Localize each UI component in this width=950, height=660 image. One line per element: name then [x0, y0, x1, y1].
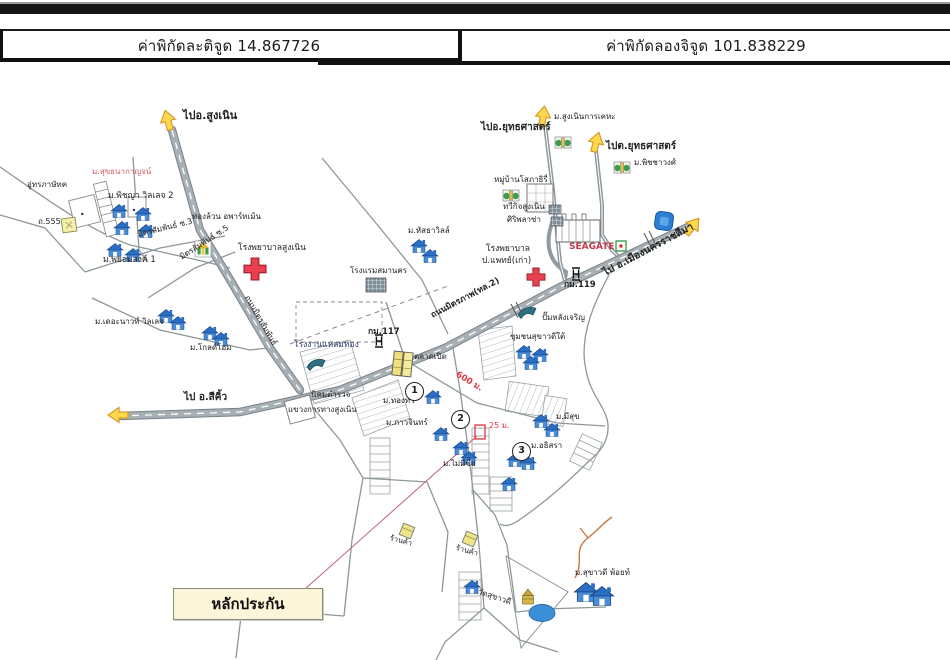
sketch-map: ไปอ.สูงเนินม.สุขธนากาญจน์อู่ทรภาษัทคถ.55…: [0, 0, 950, 660]
shop-icon: [462, 531, 478, 547]
map-graphics: [0, 0, 950, 660]
house-icon: [111, 205, 127, 218]
house-icon: [453, 442, 469, 455]
house-icon: [138, 225, 154, 238]
direction-arrow-icon: [108, 408, 128, 423]
house-icon: [158, 310, 174, 323]
coordinate-row: ค่าพิกัดละติจูด 14.867726 ค่าพิกัดลองจิจ…: [0, 29, 950, 61]
latitude-value: ค่าพิกัดละติจูด 14.867726: [0, 34, 458, 58]
shrine-icon: [195, 241, 211, 257]
green-building-icon: [614, 162, 630, 173]
house-icon: [433, 428, 449, 441]
collateral-callout-box: หลักประกัน: [173, 588, 323, 620]
hospital-cross-icon: [527, 268, 545, 286]
secondary-roads: [545, 125, 618, 281]
taweekit-store-icon: [549, 205, 561, 214]
map-icons: [61, 105, 705, 621]
dashed-boundaries: [290, 286, 448, 344]
green-building-icon: [555, 137, 571, 148]
scanned-map-document: ค่าพิกัดละติจูด 14.867726 ค่าพิกัดลองจิจ…: [0, 0, 950, 660]
shop-icon: [399, 523, 415, 539]
road-sign-green-icon: [616, 241, 626, 251]
green-building-icon: [503, 190, 519, 201]
samankorn-hotel-icon: [366, 278, 386, 292]
direction-arrow-icon: [586, 130, 606, 153]
house-icon: [170, 317, 186, 330]
temple-icon: [523, 589, 534, 604]
house-icon: [125, 249, 141, 262]
house-icon: [516, 346, 532, 359]
subdivision-block: [66, 181, 119, 243]
top-black-bar: [0, 2, 950, 14]
pond-icon: [529, 605, 555, 622]
house-icon: [520, 457, 536, 470]
subdivision-lots: [300, 326, 602, 620]
house-icon: [425, 391, 441, 404]
header-underline-right: [318, 61, 950, 65]
sign-555-icon: [61, 217, 77, 233]
stream-line: [575, 517, 612, 578]
house-icon: [411, 240, 427, 253]
coordinate-header: ค่าพิกัดละติจูด 14.867726 ค่าพิกัดลองจิจ…: [0, 0, 950, 85]
house-icon: [533, 415, 549, 428]
km-marker-icon: [375, 335, 383, 347]
direction-arrow-icon: [534, 105, 552, 127]
longitude-value: ค่าพิกัดลองจิจูด 101.838229: [462, 34, 950, 58]
hospital-cross-icon: [244, 258, 266, 280]
house-icon: [107, 244, 123, 257]
blue-landmark-icon: [654, 211, 674, 231]
house-icon: [507, 454, 523, 467]
siri-plaza-icon: [551, 217, 563, 226]
